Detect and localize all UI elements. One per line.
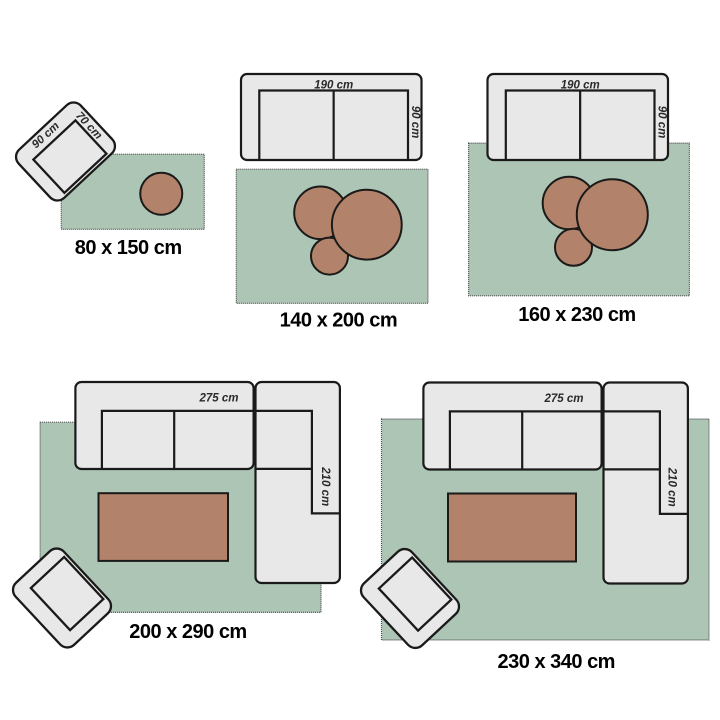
svg-text:90 cm: 90 cm bbox=[409, 106, 421, 139]
svg-text:80 x 150 cm: 80 x 150 cm bbox=[75, 237, 182, 259]
svg-text:275 cm: 275 cm bbox=[543, 393, 583, 405]
svg-text:275 cm: 275 cm bbox=[198, 392, 238, 404]
svg-text:190 cm: 190 cm bbox=[561, 80, 600, 92]
svg-text:210 cm: 210 cm bbox=[319, 466, 331, 506]
svg-text:230 x 340 cm: 230 x 340 cm bbox=[498, 651, 615, 673]
svg-text:210 cm: 210 cm bbox=[666, 467, 678, 507]
svg-text:140 x 200 cm: 140 x 200 cm bbox=[280, 310, 397, 332]
svg-text:160 x 230 cm: 160 x 230 cm bbox=[518, 304, 635, 326]
svg-text:90 cm: 90 cm bbox=[656, 106, 668, 139]
svg-text:200 x 290 cm: 200 x 290 cm bbox=[129, 621, 246, 643]
svg-text:190 cm: 190 cm bbox=[314, 80, 353, 92]
